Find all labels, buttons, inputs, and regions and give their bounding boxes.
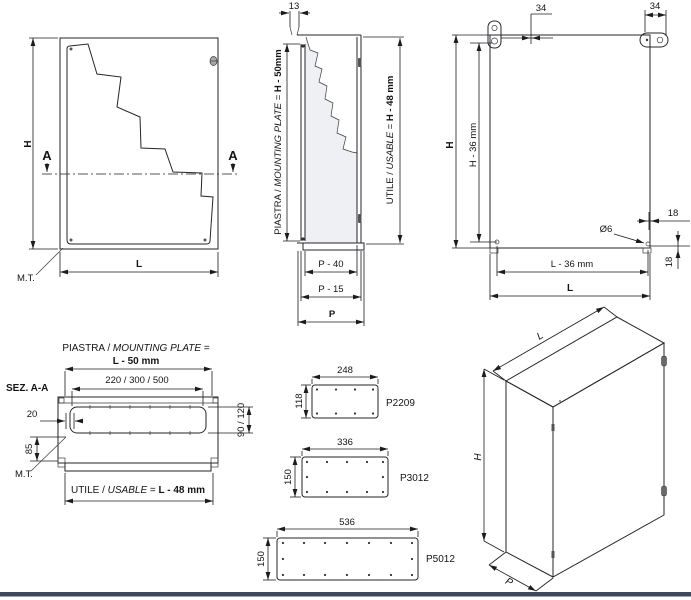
dim-hole-length: L - 36 mm [497,246,648,276]
channel-ticks [90,405,190,435]
dim-depth-90-120: 90 / 120 [208,403,253,437]
iso-top-face [506,317,664,407]
dim-34-left: 34 [501,3,553,44]
ground-terminal-callout: M.T. [17,248,63,284]
gloss-highlight [334,546,361,569]
plate-foot [643,248,651,253]
dim-hole-height: H - 36 mm [468,43,497,242]
gloss-highlight [333,467,356,487]
dim-bracket-13: 13 [279,1,310,35]
svg-text:P: P [503,576,514,589]
plate-height-dim: 150 [256,551,267,567]
dim-18-bottom: 18 [650,231,690,269]
plate-screw [301,237,304,240]
plate-width-dim: 536 [339,517,355,528]
iso-door-face [553,343,664,577]
section-title: SEZ. A-A [6,383,48,394]
svg-text:18: 18 [668,208,679,219]
top-detail [559,400,561,402]
iso-view: L H P [473,307,667,591]
svg-text:H: H [445,141,456,148]
dim-usable-length: UTILE / USABLE = L - 48 mm [65,473,213,505]
svg-text:UTILE / USABLE = L - 48 mm: UTILE / USABLE = L - 48 mm [71,485,205,496]
section-plate-dim-title: PIASTRA / MOUNTING PLATE = [62,343,210,354]
iso-dim-height: H [473,369,504,552]
plate-p3012: 336 150 P3012 [283,437,429,497]
section-marker-a-right: A [228,148,238,163]
dim-plate-widths: 220 / 300 / 500 [105,375,168,386]
door-strip [65,463,211,471]
plate-hole [646,242,650,246]
plate-channel [70,407,206,433]
plate-screw [70,239,73,242]
side-view: 13 PIASTRA / MOUNTING PLATE = H - 50mm U… [273,1,404,326]
plate-height-dim: 118 [294,393,305,408]
dim-18-top: 18 [637,208,690,230]
plate-width-dim: 248 [337,365,353,376]
plate-width-dim: 336 [337,437,353,448]
door-pin [552,551,555,558]
plate-screw [204,239,207,242]
enclosure-drawing: A A H L M.T. 13 [0,0,691,600]
footer-bar [0,592,691,597]
plate-height-dim: 150 [283,469,294,485]
svg-text:90 / 120: 90 / 120 [236,403,247,437]
svg-text:UTILE / USABLE = H - 48 mm: UTILE / USABLE = H - 48 mm [385,76,396,205]
dim-front-height: H [23,38,58,249]
side-interior-fill [305,38,357,243]
bracket-hole [492,25,497,30]
svg-text:L: L [136,259,142,270]
dim-p15: P - 15 [318,284,343,295]
hinge [662,486,667,496]
svg-text:L: L [535,330,545,342]
mounting-plate-rear [490,35,650,248]
plate-model-label: P3012 [400,473,429,484]
bracket-pin [646,39,648,41]
hinge [662,356,667,366]
svg-text:L: L [567,283,573,294]
door-pin [552,424,555,431]
svg-text:34: 34 [650,1,661,12]
mounting-plate-broken-view [67,44,213,244]
section-marker-a-left: A [42,148,52,163]
technical-drawing-page: A A H L M.T. 13 [0,0,691,600]
iso-dim-length: L [493,307,617,381]
svg-text:85: 85 [24,444,35,455]
svg-text:H: H [23,140,34,147]
plate-p2209: 248 118 P2209 [294,365,415,418]
dim-front-length: L [60,252,218,277]
bracket-screw [492,38,498,44]
dim-34-right: 34 [645,1,666,36]
hinge [358,214,362,223]
dim-usable-height: UTILE / USABLE = H - 48 mm [363,37,404,244]
dim-depth-stack: P - 40 P - 15 P [298,245,364,326]
bracket-hole [657,37,663,43]
plate-model-label: P5012 [426,554,455,565]
dim-p40: P - 40 [318,259,343,270]
svg-text:Ø6: Ø6 [600,224,613,235]
plate-dim-value: H - 50mm [273,49,284,92]
section-plate-dim-value: L - 50 mm [113,356,160,367]
hole-diameter-callout: Ø6 [600,224,644,243]
plate-screw [70,48,73,51]
svg-text:H - 36 mm: H - 36 mm [468,123,479,167]
corner-detail [59,398,64,403]
plate-model-label: P2209 [386,398,415,409]
dim-p: P [329,309,336,320]
back-view: 34 34 H H - 36 mm Ø6 18 [445,1,690,300]
svg-text:13: 13 [289,1,300,12]
plate-screw [301,44,304,47]
svg-text:M.T.: M.T. [17,273,35,284]
front-view: A A H L M.T. [17,38,238,284]
plate-p5012: 536 150 P5012 [256,517,455,580]
plate-dim-it-label: PIASTRA / [273,187,284,235]
svg-text:18: 18 [664,257,675,268]
dim-gap-20: 20 [27,409,82,429]
svg-text:34: 34 [536,3,547,14]
section-view: PIASTRA / MOUNTING PLATE = L - 50 mm 220… [6,343,253,505]
hinge [358,58,362,67]
svg-text:H: H [473,453,484,461]
svg-text:M.T.: M.T. [15,469,33,480]
door-bottom-lip [303,243,364,250]
svg-text:L - 36 mm: L - 36 mm [551,259,593,270]
svg-text:PIASTRA / MOUNTING PLATE = H -: PIASTRA / MOUNTING PLATE = H - 50mm [273,49,284,234]
dim-plate-height: PIASTRA / MOUNTING PLATE = H - 50mm [273,44,300,241]
gloss-highlight [335,389,356,407]
corner-detail [213,398,218,403]
plate-dim-en-label: MOUNTING PLATE [273,102,284,186]
iso-left-face [506,381,553,577]
enclosure-front-body [60,38,218,249]
svg-text:20: 20 [27,409,38,420]
